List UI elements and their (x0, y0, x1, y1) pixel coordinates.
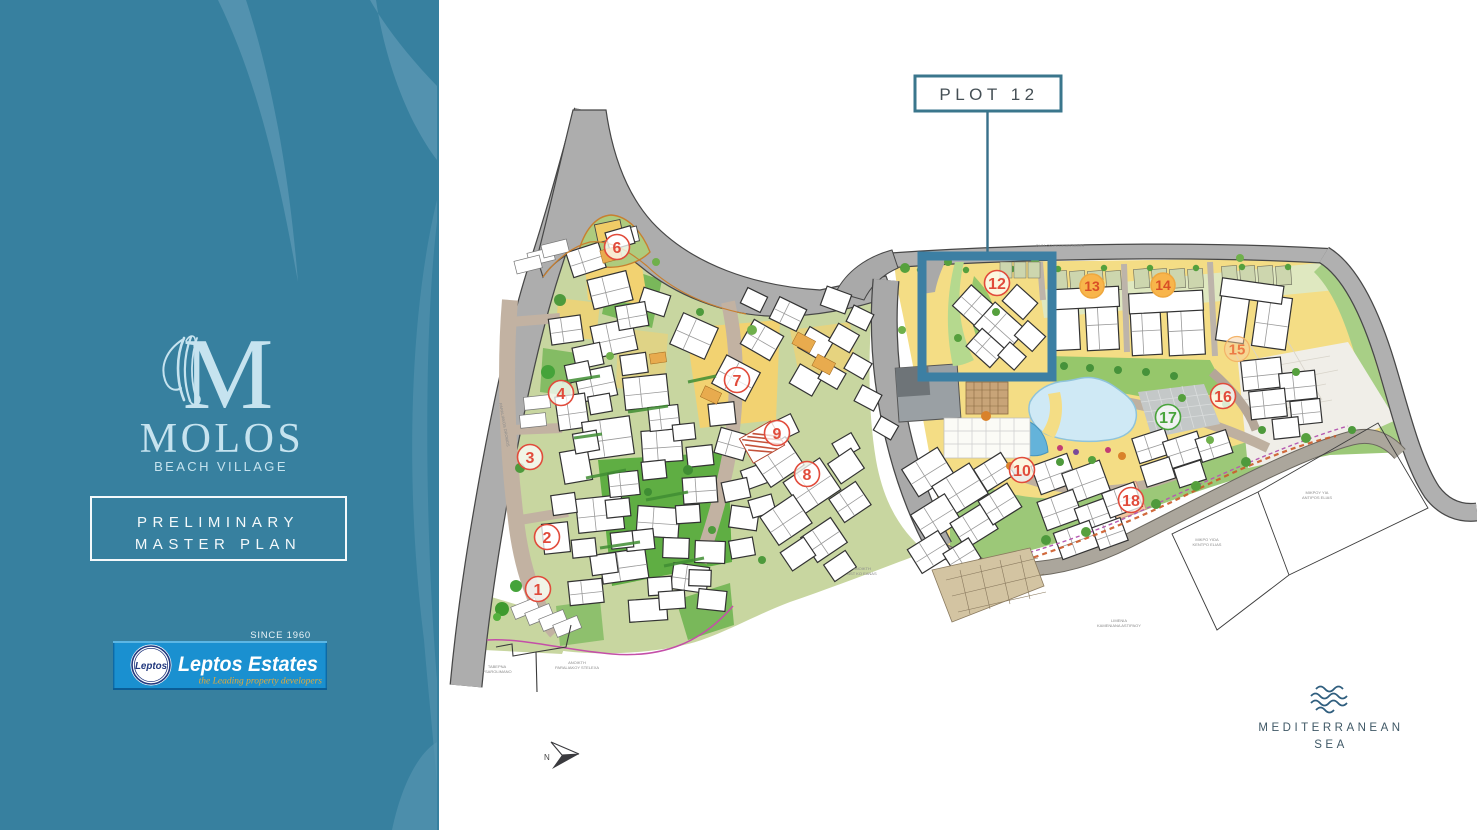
svg-text:3: 3 (526, 450, 535, 467)
svg-text:12: 12 (988, 276, 1006, 293)
svg-text:KAMENIANA ASTIPAOY: KAMENIANA ASTIPAOY (1097, 623, 1141, 628)
svg-text:Leptos: Leptos (135, 661, 168, 672)
svg-text:7: 7 (733, 373, 742, 390)
svg-text:17: 17 (1159, 410, 1177, 427)
svg-text:1: 1 (534, 582, 543, 599)
svg-text:BEACH VILLAGE: BEACH VILLAGE (154, 459, 288, 474)
svg-text:M: M (183, 318, 274, 431)
svg-text:15: 15 (1229, 341, 1246, 358)
svg-text:MOLOS: MOLOS (140, 416, 305, 462)
svg-text:AST KO EANAS: AST KO EANAS (847, 571, 877, 576)
svg-text:KENTPO ELIAS: KENTPO ELIAS (1193, 542, 1222, 547)
svg-text:16: 16 (1214, 389, 1232, 406)
svg-text:SINCE 1960: SINCE 1960 (250, 630, 311, 641)
svg-text:N: N (544, 753, 550, 762)
svg-text:PARALIAKOY STELEXA: PARALIAKOY STELEXA (555, 665, 599, 670)
svg-text:MASTER PLAN: MASTER PLAN (135, 536, 301, 553)
svg-text:2: 2 (543, 530, 552, 547)
svg-text:6: 6 (613, 240, 622, 257)
svg-text:SEA: SEA (1314, 739, 1348, 751)
svg-text:ANTIPOS ELIAS: ANTIPOS ELIAS (1302, 495, 1332, 500)
svg-text:9: 9 (773, 426, 782, 443)
svg-text:10: 10 (1013, 463, 1031, 480)
svg-text:Leptos Estates: Leptos Estates (178, 653, 318, 676)
svg-text:PRELIMINARY: PRELIMINARY (137, 514, 299, 531)
svg-text:PLOT 12: PLOT 12 (939, 85, 1038, 104)
svg-text:MEDITERRANEAN: MEDITERRANEAN (1258, 722, 1403, 734)
svg-text:the Leading property developer: the Leading property developers (199, 677, 323, 687)
svg-text:14: 14 (1155, 277, 1171, 293)
svg-text:18: 18 (1122, 493, 1140, 510)
svg-text:DHM OD PEGEIAS ODOS: DHM OD PEGEIAS ODOS (1036, 243, 1084, 248)
svg-text:PSAROLIMANO: PSAROLIMANO (482, 669, 511, 674)
svg-text:8: 8 (803, 467, 812, 484)
svg-text:13: 13 (1084, 278, 1100, 294)
svg-text:4: 4 (557, 386, 566, 403)
